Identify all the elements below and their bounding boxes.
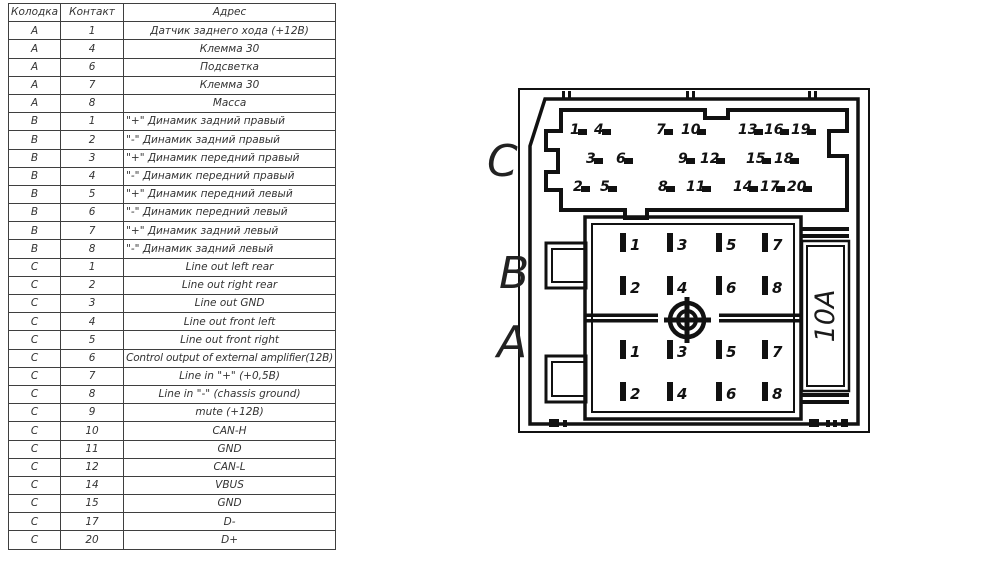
a-pin-1: 1 [630, 343, 640, 361]
scanned-page: Колодка Контакт Адрес A1Датчик заднего х… [0, 0, 1000, 563]
a-pin-contact-4 [667, 382, 673, 401]
a-pin-6: 6 [726, 385, 736, 403]
a-pin-contact-6 [716, 382, 722, 401]
a-pin-contact-8 [762, 382, 768, 401]
fuse-contact-top [800, 227, 849, 231]
c-pin-contact-1 [578, 129, 587, 135]
a-pin-5: 5 [726, 343, 736, 361]
c-pin-contact-10 [697, 129, 706, 135]
frame-inner-line [530, 99, 858, 424]
c-pin-contact-17 [776, 186, 785, 192]
c-pin-contact-12 [716, 158, 725, 164]
housing-frame [519, 89, 869, 432]
b-pin-contact-6 [716, 276, 722, 295]
a-pin-contact-7 [762, 340, 768, 359]
c-pin-contact-5 [608, 186, 617, 192]
frame-top-ticks [562, 91, 817, 98]
c-pin-contact-11 [702, 186, 711, 192]
fuse-contact-bottom [800, 393, 849, 397]
a-pin-contact-1 [620, 340, 626, 359]
b-pin-8: 8 [772, 279, 782, 297]
a-pin-contact-2 [620, 382, 626, 401]
c-pin-contact-15 [762, 158, 771, 164]
b-pin-7: 7 [772, 236, 783, 254]
b-pin-contact-5 [716, 233, 722, 252]
section-label-c: C [487, 136, 518, 187]
a-pin-contact-3 [667, 340, 673, 359]
section-label-b: B [499, 248, 529, 299]
b-pin-contact-7 [762, 233, 768, 252]
c-pin-contact-8 [666, 186, 675, 192]
a-pin-2: 2 [630, 385, 640, 403]
c-pin-contact-3 [594, 158, 603, 164]
fuse-holder: 10A [800, 227, 849, 404]
c-pin-contact-20 [803, 186, 812, 192]
c-pin-contact-2 [581, 186, 590, 192]
c-pin-contact-7 [664, 129, 673, 135]
key-tab-a-inner [552, 362, 586, 396]
b-pin-contact-4 [667, 276, 673, 295]
a-pin-3: 3 [677, 343, 687, 361]
fuse-contact-top2 [800, 234, 849, 238]
c-pin-contact-18 [790, 158, 799, 164]
c-pin-contact-19 [807, 129, 816, 135]
c-pin-contact-13 [754, 129, 763, 135]
a-pin-7: 7 [772, 343, 783, 361]
fuse-contact-bottom2 [800, 400, 849, 404]
section-label-a: A [494, 317, 527, 368]
b-pin-5: 5 [726, 236, 736, 254]
mount-crosshair-icon [664, 297, 711, 343]
b-pin-contact-3 [667, 233, 673, 252]
b-pin-2: 2 [630, 279, 640, 297]
a-pin-contact-5 [716, 340, 722, 359]
key-tab-b-inner [552, 249, 586, 282]
b-pin-4: 4 [676, 279, 687, 297]
b-pin-contact-8 [762, 276, 768, 295]
c-pin-contact-6 [624, 158, 633, 164]
section-c-pins: 1471013161936912151825811141720 [570, 122, 816, 195]
a-pin-4: 4 [676, 385, 687, 403]
a-pin-8: 8 [772, 385, 782, 403]
b-pin-contact-1 [620, 233, 626, 252]
c-pin-contact-16 [780, 129, 789, 135]
c-pin-contact-9 [686, 158, 695, 164]
frame-outer-line [519, 89, 869, 432]
connector-diagram: 1471013161936912151825811141720 [0, 0, 1000, 563]
section-ba-block: 13572468 13572468 [546, 217, 801, 419]
c-pin-contact-14 [749, 186, 758, 192]
section-a-pins: 13572468 [620, 340, 783, 403]
b-pin-3: 3 [677, 236, 687, 254]
fuse-rating-label: 10A [810, 290, 841, 343]
c-pin-contact-4 [602, 129, 611, 135]
section-b-pins: 13572468 [620, 233, 783, 297]
b-pin-6: 6 [726, 279, 736, 297]
b-pin-contact-2 [620, 276, 626, 295]
b-pin-1: 1 [630, 236, 640, 254]
